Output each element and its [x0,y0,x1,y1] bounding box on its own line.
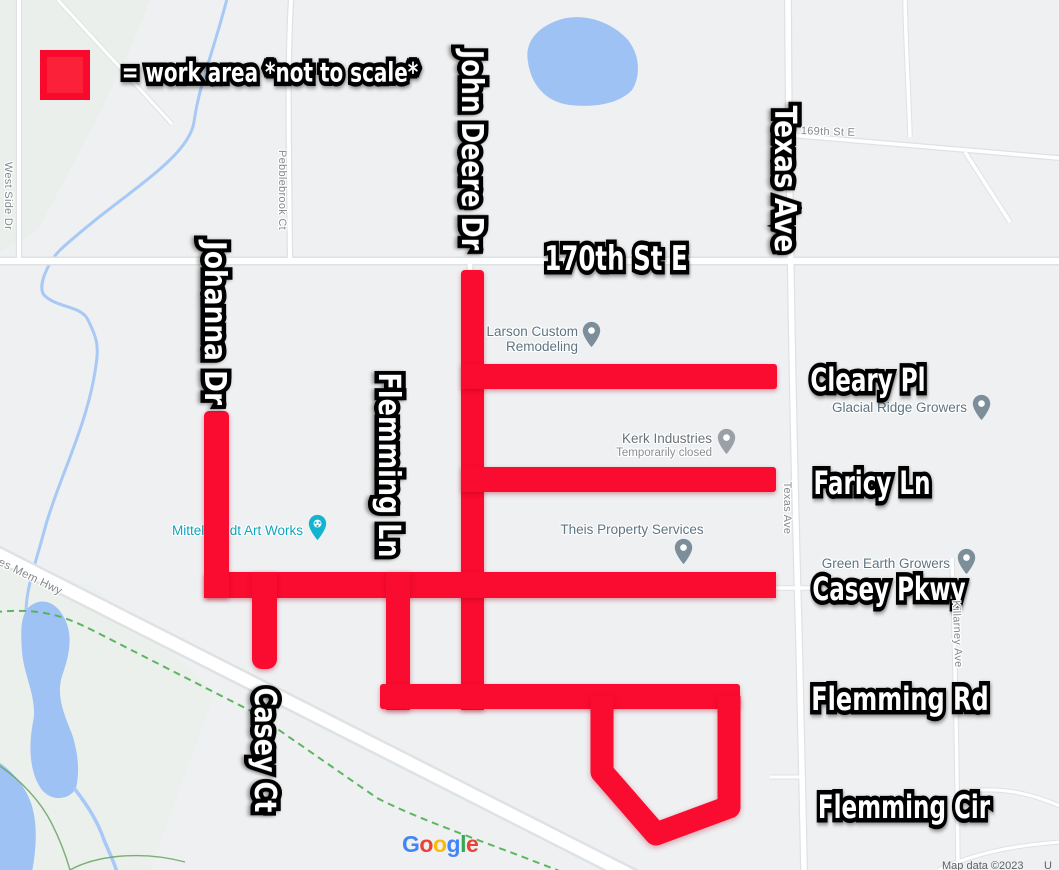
google-logo-letter: o [433,831,447,857]
google-logo-letter: e [466,831,478,857]
map-canvas[interactable]: 121221 Larson CustomRemodelingKerk Indus… [0,0,1059,870]
google-logo[interactable]: Google [402,831,478,858]
google-logo-letter: o [419,831,433,857]
map-attribution: Map data ©2023 [942,860,1024,870]
google-logo-letter: g [447,831,461,857]
footer: Google Map data ©2023 U [0,0,1059,870]
google-logo-letter: G [402,831,419,857]
map-attribution-right: U [1044,860,1052,870]
